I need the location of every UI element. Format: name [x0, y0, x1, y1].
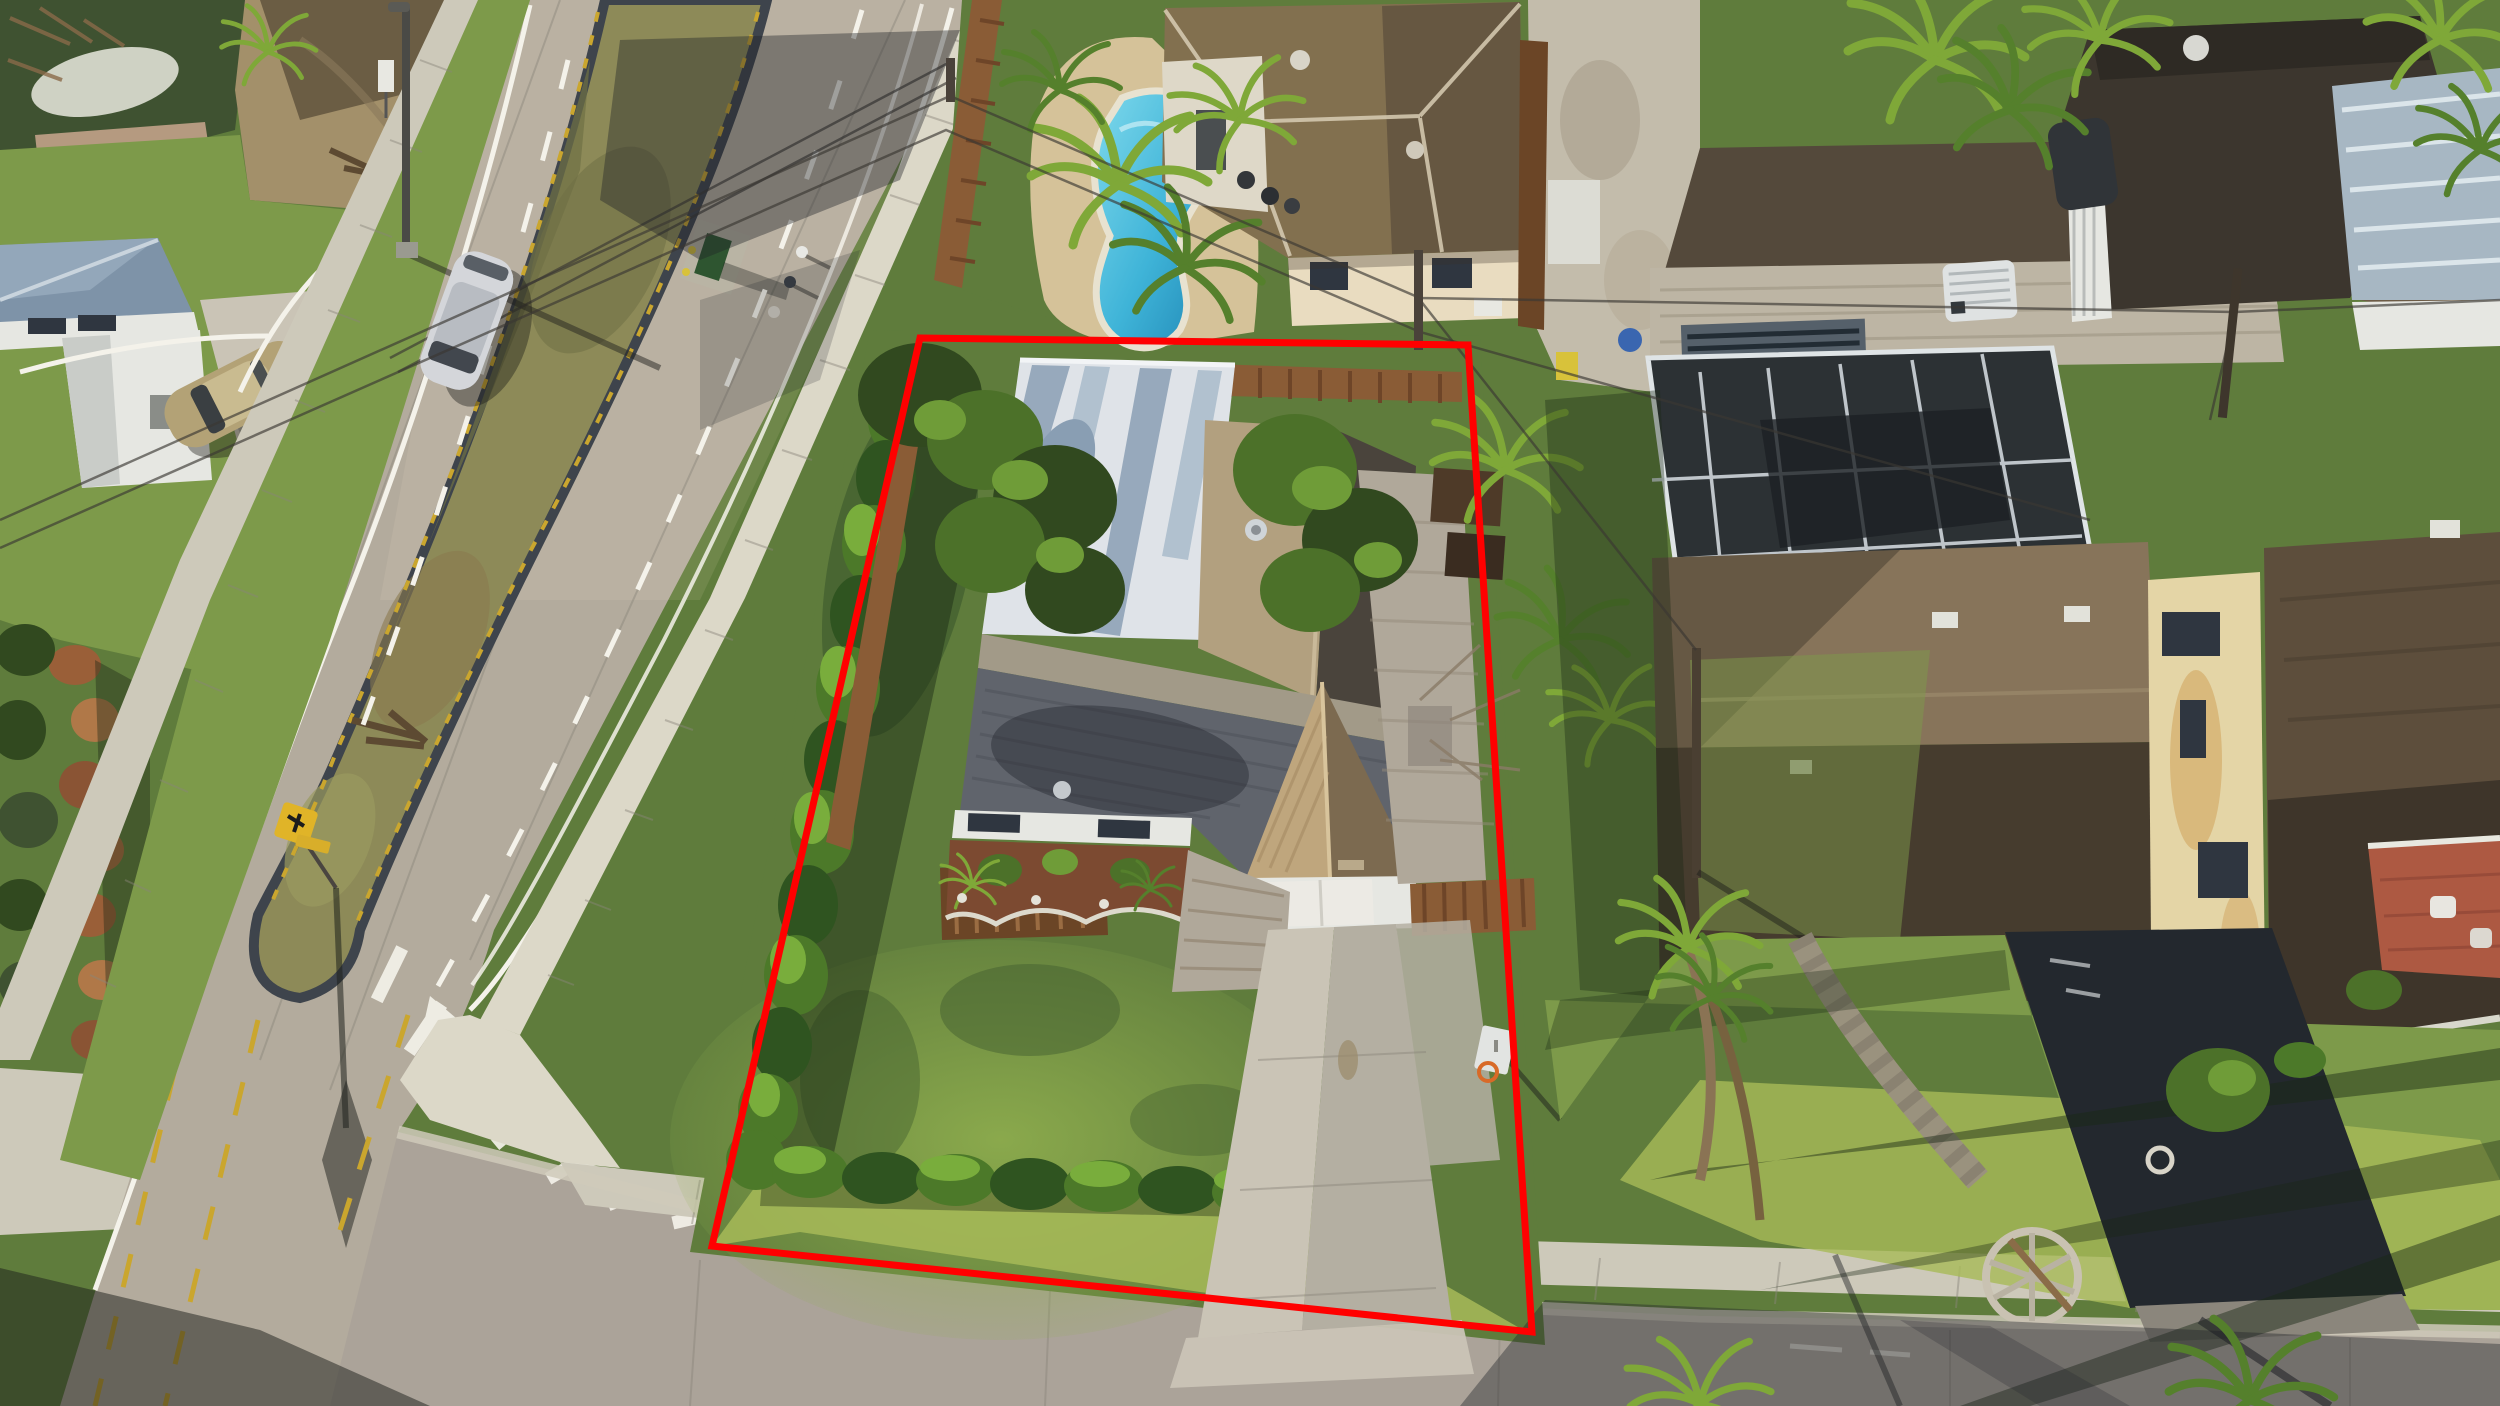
white-rv [1942, 260, 2018, 323]
pole-mid [1414, 250, 1423, 350]
right-neighbors [1545, 0, 2500, 1406]
aerial-photo [0, 0, 2500, 1406]
utility-pole [1692, 648, 1701, 878]
aerial-photo-stage [0, 0, 2500, 1406]
small-road-sign [378, 60, 394, 92]
